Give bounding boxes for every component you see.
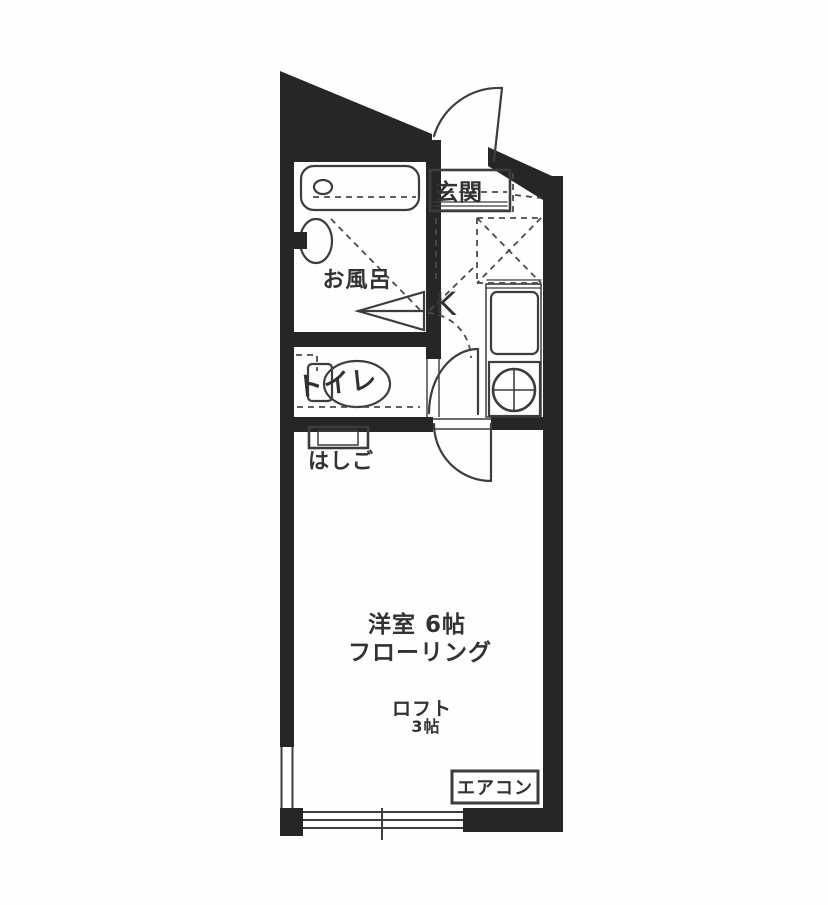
washbasin-faucet <box>293 232 307 249</box>
kitchen-sink <box>491 292 538 354</box>
labels: 玄関 お風呂 K トイレ はしご 洋室 6帖 フローリング ロフト 3帖 エアコ… <box>295 179 533 799</box>
wall-kitchen-room <box>491 417 543 430</box>
entrance-label: 玄関 <box>435 179 483 206</box>
wall-left <box>280 160 294 747</box>
bath-label: お風呂 <box>322 268 391 293</box>
bathtub-drain <box>314 180 332 194</box>
bath-door-dash <box>331 219 423 313</box>
flooring-label: フローリング <box>348 639 492 666</box>
entrance-door-leaf <box>494 88 502 161</box>
bathtub <box>301 166 419 210</box>
fixtures <box>293 88 541 803</box>
wall-bath-kitchen <box>426 140 441 359</box>
floorplan: 玄関 お風呂 K トイレ はしご 洋室 6帖 フローリング ロフト 3帖 エアコ… <box>0 0 828 905</box>
wall-top-diagonal-left <box>280 71 432 162</box>
ladder-box-inner <box>318 431 358 445</box>
room-door-arc <box>434 424 491 481</box>
kitchen-label: K <box>435 285 457 323</box>
loft-size-label: 3帖 <box>411 717 440 736</box>
wall-right <box>543 176 563 832</box>
aircon-label: エアコン <box>457 778 533 799</box>
wall-left-bottom-corner <box>280 808 303 836</box>
ladder-label: はしご <box>308 449 374 473</box>
wall-toilet-bottom <box>280 417 433 432</box>
main-room-label: 洋室 6帖 <box>368 611 466 638</box>
wall-bath-toilet <box>280 332 440 347</box>
floorplan-page: 玄関 お風呂 K トイレ はしご 洋室 6帖 フローリング ロフト 3帖 エアコ… <box>0 0 828 905</box>
entrance-door-arc <box>434 88 502 136</box>
